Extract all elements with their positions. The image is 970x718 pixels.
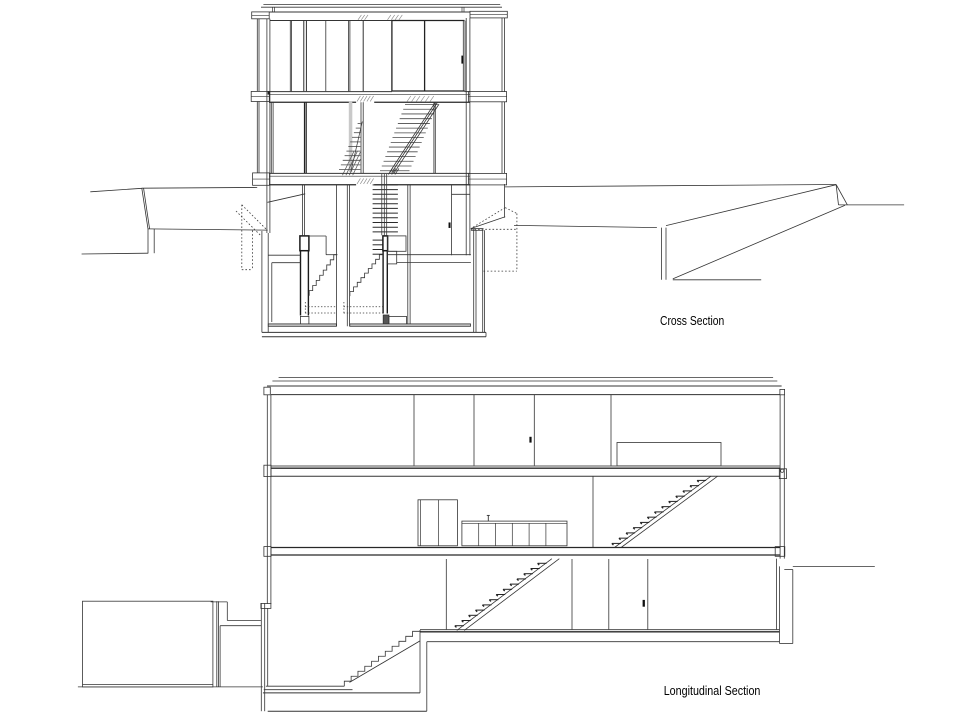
svg-text:Longitudinal Section: Longitudinal Section [664,683,761,698]
svg-text:Cross Section: Cross Section [660,313,724,328]
